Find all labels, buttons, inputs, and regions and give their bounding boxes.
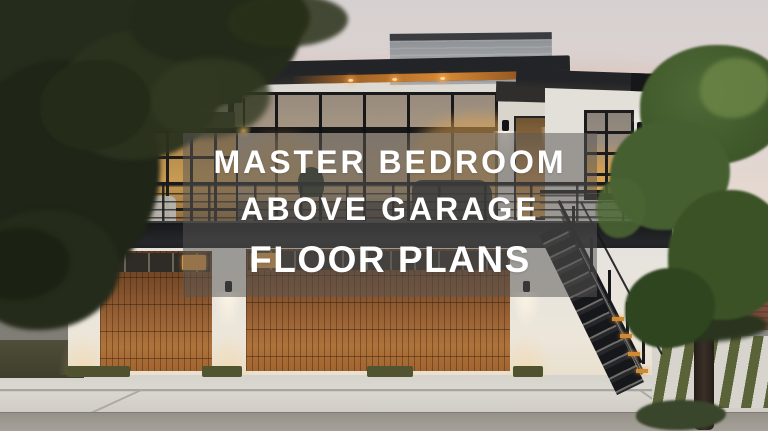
left-tree-branch-tips xyxy=(228,0,348,47)
grass-strip xyxy=(367,366,413,377)
entry-sconce xyxy=(502,120,509,131)
grass-strip xyxy=(67,366,130,377)
stair-riser-light xyxy=(636,369,648,373)
hero-title-line1: MASTER BEDROOM xyxy=(183,146,597,178)
sconce-glow xyxy=(213,292,243,330)
stair-riser-light xyxy=(628,352,640,356)
stair-post xyxy=(608,270,611,303)
right-tree-highlight xyxy=(700,58,768,118)
hero-title-block: MASTER BEDROOM ABOVE GARAGE FLOOR PLANS xyxy=(183,133,597,297)
hero-title-line2: ABOVE GARAGE xyxy=(183,193,597,225)
grass-strip xyxy=(202,366,242,377)
grass-strip xyxy=(513,366,543,377)
hero-image: MASTER BEDROOM ABOVE GARAGE FLOOR PLANS xyxy=(0,0,768,431)
stair-riser-light xyxy=(612,317,624,321)
hero-title-line3: FLOOR PLANS xyxy=(183,241,597,278)
stair-riser-light xyxy=(620,334,632,338)
sconce-glow xyxy=(511,292,541,330)
